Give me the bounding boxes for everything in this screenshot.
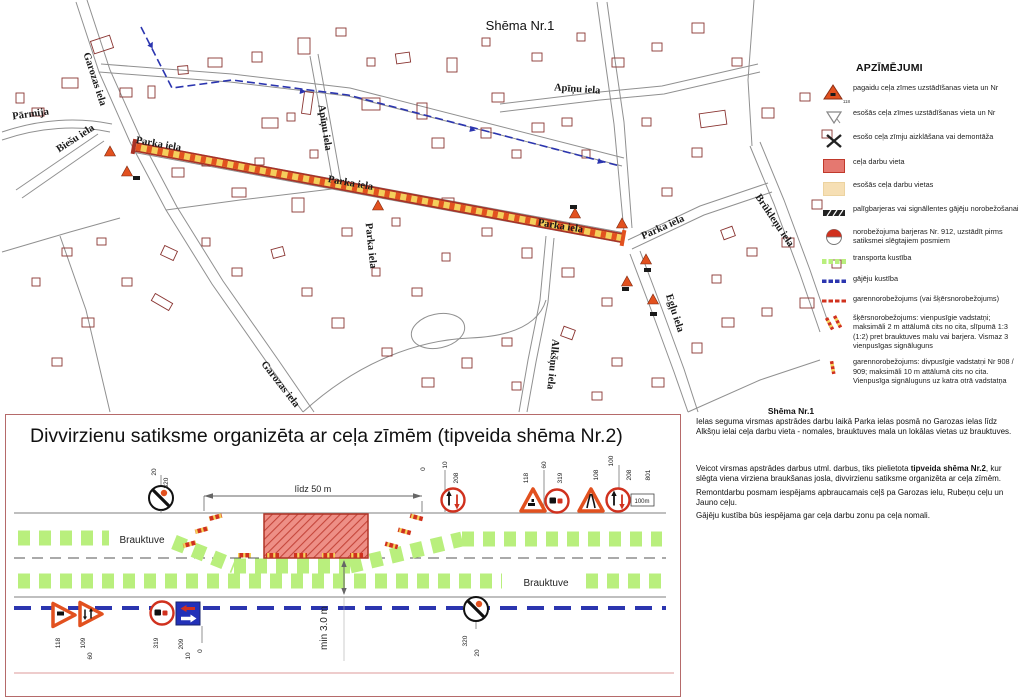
- existing-sign-triangle-icon: [822, 108, 846, 126]
- street-label: Parka iela: [537, 218, 585, 236]
- street-label: Parka iela: [363, 222, 379, 269]
- notes-paragraph-2: Veicot virsmas apstrādes darbus utml. da…: [696, 464, 1018, 485]
- legend-item-label: ceļa darbu vieta: [853, 157, 905, 166]
- notes-p2-prefix: Veicot virsmas apstrādes darbus utml. da…: [696, 464, 911, 473]
- street-label: Brūkleņu iela: [752, 192, 796, 249]
- sign-plate-marker: [570, 205, 577, 209]
- detail-label: Brauktuve: [523, 578, 568, 589]
- legend-item: palīgbarjeras vai signāllentes gājēju no…: [822, 204, 1022, 221]
- detail-label: 209: [178, 638, 185, 649]
- sign-109-bottom: [80, 603, 102, 626]
- legend-item-label: norobežojuma barjeras Nr. 912, uzstādīt …: [853, 227, 1022, 246]
- detail-label: 118: [523, 472, 530, 483]
- sign-108-right: [579, 489, 603, 511]
- detail-label: līdz 50 m: [295, 484, 332, 494]
- sign-plate-marker: [622, 287, 629, 291]
- work-zone-swatch: [822, 157, 846, 174]
- detail-label: 319: [557, 472, 564, 483]
- existing-work-zone-swatch: [822, 180, 846, 197]
- detail-label: 319: [153, 637, 160, 648]
- legend-item: norobežojuma barjeras Nr. 912, uzstādīt …: [822, 227, 1022, 246]
- temp-sign-marker-icon: [570, 208, 581, 218]
- sign-319-right: [546, 490, 569, 513]
- notes-paragraph-3: Remontdarbu posmam iespējams apbraucamai…: [696, 488, 1018, 509]
- legend-item-label: garennorobežojums (vai šķērsnorobežojums…: [853, 294, 999, 303]
- notes-title: Shēma Nr.1: [696, 406, 886, 416]
- street-label: Pārmija: [12, 106, 51, 122]
- map-title: Shēma Nr.1: [440, 18, 600, 33]
- sign-320-top: [149, 486, 173, 513]
- detail-label: 10: [185, 652, 192, 660]
- map-street-labels: Garozas ielaPārmijaBiešu ielaParka ielaP…: [12, 51, 796, 410]
- legend-item-label: palīgbarjeras vai signāllentes gājēju no…: [853, 204, 1019, 213]
- street-label: Egļu iela: [663, 293, 686, 335]
- legend-item: garennorobežojums (vai šķērsnorobežojums…: [822, 294, 1022, 307]
- legend-item-label: gājēju kustība: [853, 274, 898, 283]
- detail-label: 109: [80, 637, 87, 648]
- detail-label: 60: [541, 461, 548, 469]
- temp-sign-marker-icon: [122, 166, 133, 176]
- sign-118-right: [521, 489, 545, 511]
- longitudinal-barrier-icon: [822, 294, 846, 307]
- legend-item-label: esošo ceļa zīmju aizklāšana vai demontāž…: [853, 132, 993, 141]
- panel-title: Divvirzienu satiksme organizēta ar ceļa …: [30, 425, 670, 448]
- longitudinal-posts-icon: [822, 357, 846, 378]
- legend-item-label: garennorobežojums: divpusīgie vadstatņi …: [853, 357, 1022, 385]
- scheme-document: Garozas ielaPārmijaBiešu ielaParka ielaP…: [0, 0, 1024, 699]
- work-zone-rect: [264, 514, 368, 558]
- detail-label: 10: [442, 461, 449, 469]
- detail-label: 100: [608, 455, 615, 466]
- temp-sign-marker-icon: [617, 218, 628, 228]
- street-label: Apīņu iela: [554, 82, 602, 96]
- legend-items: 118pagaidu ceļa zīmes uzstādīšanas vieta…: [822, 83, 1022, 386]
- sign-208-right: [442, 489, 465, 512]
- barrier-tape-icon: [822, 204, 846, 221]
- detail-label: 100m: [634, 499, 649, 505]
- detail-label: 320: [163, 477, 170, 488]
- detail-label: Brauktuve: [119, 535, 164, 546]
- transport-flow-icon: [822, 253, 846, 268]
- dimension-50m: [204, 493, 422, 512]
- detail-label: min 3.0 m: [319, 606, 330, 650]
- notes-block: Shēma Nr.1 Ielas seguma virsmas apstrāde…: [696, 406, 1018, 525]
- street-label: Garozas iela: [81, 51, 109, 108]
- legend-item-label: esošās ceļa darbu vietas: [853, 180, 933, 189]
- sign-plate-marker: [650, 312, 657, 316]
- notes-paragraph-1: Ielas seguma virsmas apstrādes darbu lai…: [696, 417, 1018, 438]
- detail-label: 20: [474, 649, 481, 657]
- legend-item-label: šķērsnorobežojums: vienpusīgie vadstatņi…: [853, 313, 1022, 351]
- detail-label: 0: [197, 649, 204, 653]
- legend-item: esošās ceļa zīmes uzstādīšanas vieta un …: [822, 108, 1022, 126]
- sign-208-far-right: [607, 489, 630, 512]
- detail-label: 208: [453, 472, 460, 483]
- legend-item-label: pagaidu ceļa zīmes uzstādīšanas vieta un…: [853, 83, 998, 92]
- detail-label: 60: [87, 652, 94, 660]
- detail-label: 801: [645, 469, 652, 480]
- sign-plate-marker: [644, 268, 651, 272]
- legend-title: APZĪMĒJUMI: [856, 62, 1022, 74]
- barrier-912-icon: [822, 227, 846, 246]
- legend-item: ceļa darbu vieta: [822, 157, 1022, 174]
- cross-barrier-posts-icon: [822, 313, 846, 334]
- sign-209-bottom: [176, 602, 200, 625]
- notes-p2-bold: tipveida shēma Nr.2: [911, 464, 986, 473]
- sign-number-note: 118: [843, 99, 850, 104]
- detail-label: 118: [55, 637, 62, 648]
- detail-label: 320: [462, 635, 469, 646]
- notes-paragraph-4: Gājēju kustība būs iespējama gar ceļa da…: [696, 511, 1018, 521]
- legend-item-label: transporta kustība: [853, 253, 911, 262]
- street-label: Alkšņu iela: [544, 339, 560, 391]
- detail-diagram: 20320līdz 50 m01020811860319108100208801…: [6, 415, 680, 696]
- temp-sign-marker-icon: [373, 200, 384, 210]
- temp-sign-marker-icon: [105, 146, 116, 156]
- legend: APZĪMĒJUMI 118pagaidu ceļa zīmes uzstādī…: [822, 62, 1022, 392]
- legend-item: gājēju kustība: [822, 274, 1022, 287]
- sign-320-bottom: [464, 597, 488, 621]
- typical-scheme-panel: 20320līdz 50 m01020811860319108100208801…: [5, 414, 681, 697]
- pedestrian-flow-icon: [822, 274, 846, 287]
- detail-label: 20: [151, 468, 158, 476]
- legend-item: esošo ceļa zīmju aizklāšana vai demontāž…: [822, 132, 1022, 150]
- detail-label: 208: [626, 469, 633, 480]
- sign-plate-marker: [133, 176, 140, 180]
- detail-label: 108: [593, 469, 600, 480]
- sign-319-bottom: [151, 602, 174, 625]
- legend-item: transporta kustība: [822, 253, 1022, 268]
- legend-item-label: esošās ceļa zīmes uzstādīšanas vieta un …: [853, 108, 995, 117]
- pedestrian-route: [141, 27, 620, 166]
- detail-label: 0: [420, 467, 427, 471]
- legend-item: garennorobežojums: divpusīgie vadstatņi …: [822, 357, 1022, 385]
- temp-sign-triangle-icon: 118: [822, 83, 846, 101]
- sign-removal-x-icon: [822, 132, 846, 150]
- legend-item: 118pagaidu ceļa zīmes uzstādīšanas vieta…: [822, 83, 1022, 101]
- temp-sign-marker-icon: [622, 276, 633, 286]
- street-label: Apīņu iela: [315, 104, 333, 152]
- map-streets: [2, 0, 830, 412]
- legend-item: esošās ceļa darbu vietas: [822, 180, 1022, 197]
- street-label: Parka iela: [640, 213, 687, 242]
- legend-item: šķērsnorobežojums: vienpusīgie vadstatņi…: [822, 313, 1022, 351]
